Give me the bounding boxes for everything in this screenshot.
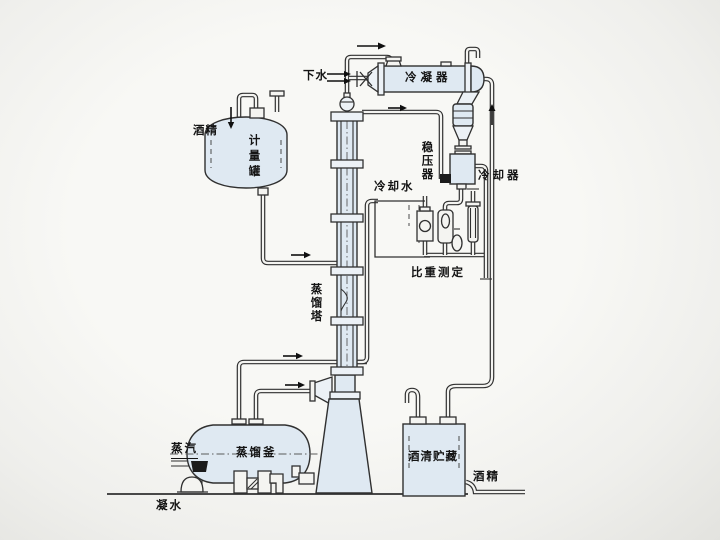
label-condenser: 冷凝器	[405, 73, 452, 85]
cooler	[440, 154, 475, 189]
process-diagram: 下水 冷凝器 酒精 计量罐 稳压器 冷却水 冷却器 比重测定 蒸馏塔 蒸馏釜 蒸…	[0, 0, 720, 540]
label-alcohol-feed: 酒精	[193, 126, 218, 138]
tower-base	[310, 375, 372, 493]
label-metering-tank: 计量罐	[247, 134, 259, 181]
label-condensate-water: 凝水	[156, 501, 183, 513]
diagram-linework	[0, 0, 720, 540]
label-drain-water: 下水	[303, 71, 328, 83]
pressure-stabilizer	[453, 92, 479, 154]
label-steam: 蒸汽	[171, 444, 198, 459]
label-alcohol-storage: 酒清贮藏	[408, 452, 458, 464]
label-cooling-water: 冷却水	[374, 182, 415, 194]
label-alcohol-out: 酒精	[473, 472, 500, 484]
label-cooler: 冷却器	[478, 171, 522, 183]
label-distillation-tower: 蒸馏塔	[309, 283, 321, 324]
label-distillation-kettle: 蒸馏釜	[236, 448, 277, 460]
label-pressure-stabilizer: 稳压器	[420, 141, 432, 182]
distillation-tower	[331, 93, 363, 375]
label-specific-gravity: 比重测定	[411, 268, 465, 280]
